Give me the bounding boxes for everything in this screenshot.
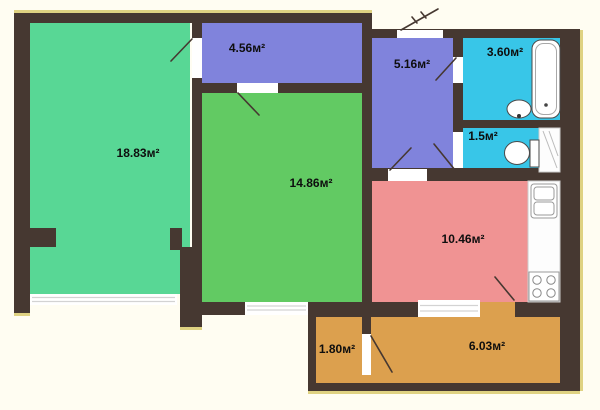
room-label-wc: 1.5м² xyxy=(468,129,498,143)
door-middle-room xyxy=(237,83,278,93)
accent-balcony-foot xyxy=(308,391,580,394)
wall-balcony-top-left xyxy=(308,302,418,317)
stove-icon xyxy=(529,272,559,301)
accent-divider-foot xyxy=(180,327,202,330)
door-balcony-divider xyxy=(362,334,371,375)
floor-plan-canvas: 18.83м² 4.56м² 14.86м² 5.16м² 3.60м² 1.5… xyxy=(0,0,600,410)
room-label-kitchen: 10.46м² xyxy=(442,232,485,246)
door-bathroom xyxy=(453,57,463,83)
room-label-top-room: 4.56м² xyxy=(229,41,265,55)
wall-divider-lower xyxy=(180,247,202,327)
door-living xyxy=(192,38,202,78)
wall-left xyxy=(14,13,30,313)
accent-top-edge xyxy=(14,10,372,13)
window-middle-room xyxy=(245,302,308,315)
wall-balcony-left xyxy=(308,302,316,391)
wall-toproom-bottom xyxy=(202,83,362,93)
accent-right-edge xyxy=(580,30,583,391)
entrance-door-opening xyxy=(397,30,443,38)
pilaster-middle xyxy=(170,228,182,250)
room-middle xyxy=(202,93,362,302)
pilaster-left xyxy=(30,228,56,247)
balcony-doorway-opening xyxy=(480,302,515,317)
room-label-hallway: 5.16м² xyxy=(394,57,430,71)
wall-bath-wc xyxy=(453,120,560,128)
window-living xyxy=(30,294,177,305)
wall-balcony-divider xyxy=(362,315,371,334)
room-label-middle-room: 14.86м² xyxy=(290,176,333,190)
kitchen-sink-unit xyxy=(531,184,557,218)
wall-middle-right xyxy=(362,13,372,317)
accent-left-wall-foot xyxy=(14,313,30,316)
window-kitchen-balcony xyxy=(418,300,480,317)
toilet-icon xyxy=(505,142,530,165)
wall-balcony-bottom xyxy=(308,383,580,391)
wall-right-outer xyxy=(560,29,580,391)
room-label-balcony-left: 1.80м² xyxy=(319,342,355,356)
toilet-tank xyxy=(530,140,539,167)
wall-balcony-top-right xyxy=(515,302,560,317)
bathtub-drain xyxy=(544,103,548,107)
room-top xyxy=(202,23,362,83)
room-label-balcony-right: 6.03м² xyxy=(469,339,505,353)
room-label-bathroom: 3.60м² xyxy=(487,45,523,59)
room-living xyxy=(30,23,190,294)
door-wc xyxy=(453,132,463,168)
sink-tap xyxy=(517,114,521,118)
floor-plan: 18.83м² 4.56м² 14.86м² 5.16м² 3.60м² 1.5… xyxy=(0,0,600,410)
shower-panel-icon xyxy=(539,128,560,172)
door-kitchen xyxy=(388,169,427,181)
room-label-living: 18.83м² xyxy=(117,146,160,160)
wall-stub-middle-room xyxy=(202,302,245,315)
